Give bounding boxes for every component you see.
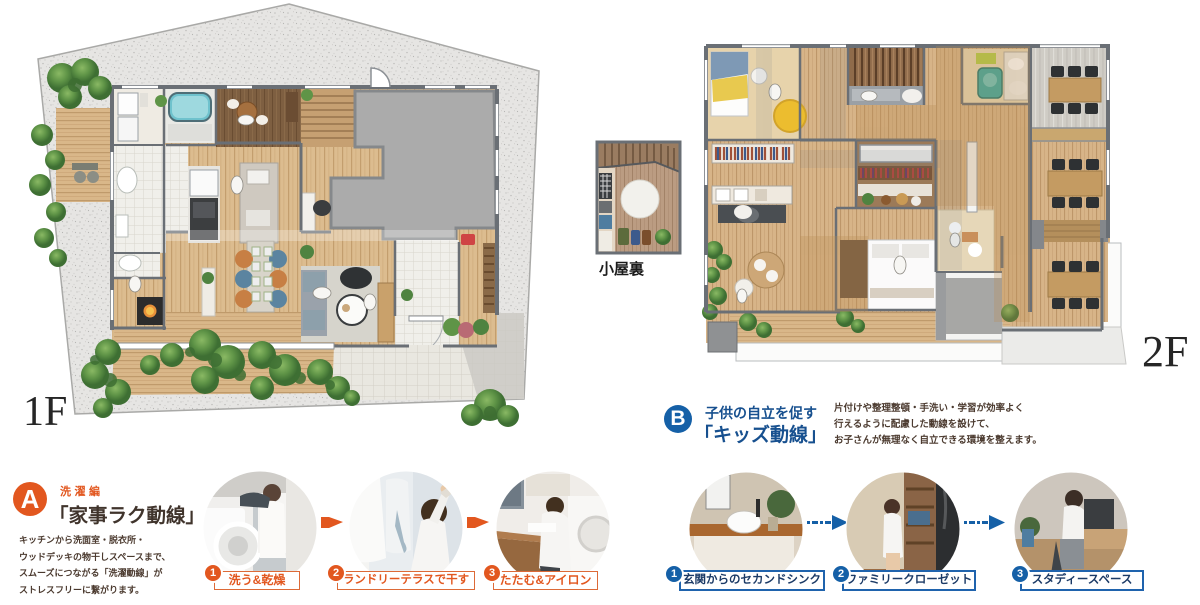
svg-text:1F: 1F [23,389,67,435]
svg-text:2F: 2F [1142,327,1188,376]
svg-text:小屋裏: 小屋裏 [599,260,645,278]
